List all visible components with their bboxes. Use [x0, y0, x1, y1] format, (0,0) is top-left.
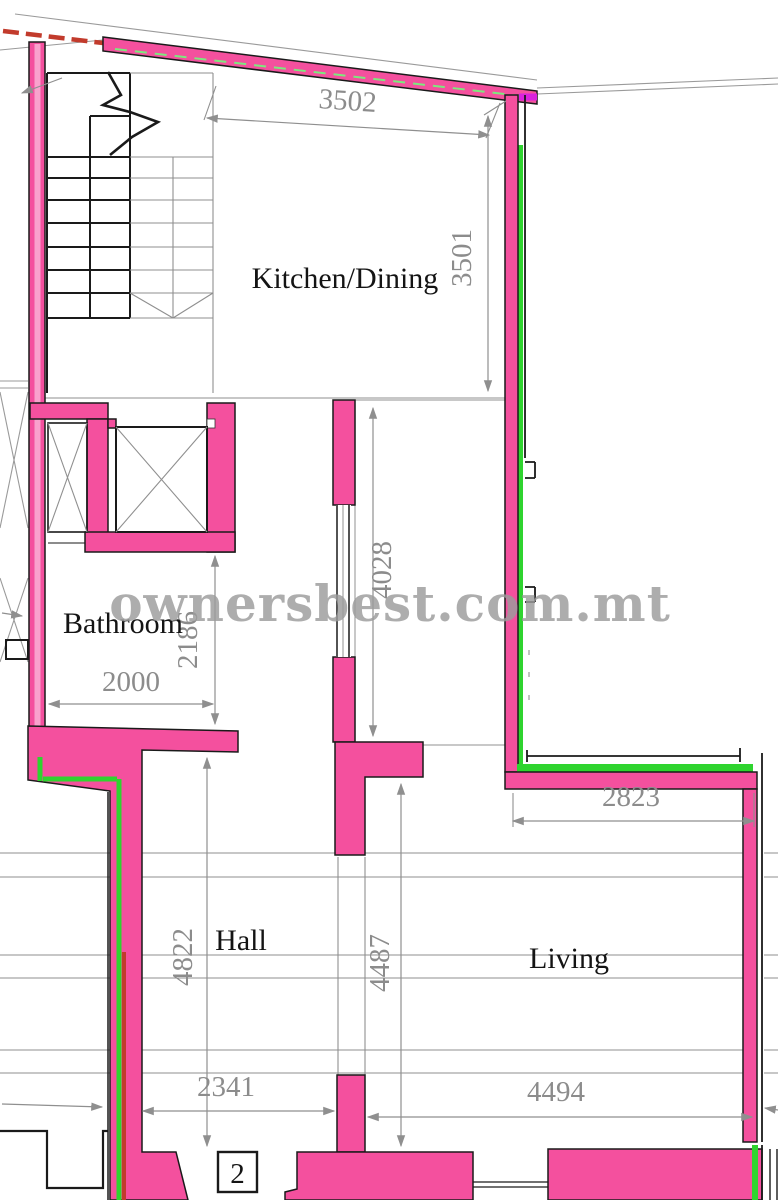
winder-treads [130, 293, 213, 318]
living-east-wall [743, 789, 757, 1142]
lift-shaft [30, 403, 235, 552]
bottom-wall-living [548, 1149, 762, 1200]
adjacent-outline-bottom-left [0, 1131, 108, 1188]
door-tag: 2 [218, 1152, 257, 1192]
dim-bathroom-width: 2000 [102, 666, 160, 698]
dim-kitchen-height: 3501 [446, 229, 478, 287]
kitchen-sw-wall [335, 742, 423, 855]
kitchen-east-wall [505, 95, 523, 772]
dim-hall-mid-height: 4487 [364, 934, 396, 992]
watermark-text: ownersbest.com.mt [109, 574, 671, 633]
dim-hall-bottom-width: 2341 [197, 1071, 255, 1103]
adjacent-shaft-left [0, 381, 28, 662]
bottom-wall-hall [285, 1152, 473, 1200]
dim-hall-height: 4822 [167, 928, 199, 986]
dim-living-bottom-width: 4494 [527, 1076, 586, 1108]
dim-living-top-width: 2823 [602, 781, 660, 813]
room-label-hall: Hall [215, 924, 267, 957]
room-label-living: Living [529, 942, 609, 975]
room-label-kitchen: Kitchen/Dining [252, 262, 439, 295]
floor-plan: 2 3502 3501 4028 2186 2000 2823 4822 448… [0, 0, 778, 1200]
bottom-window [473, 1182, 548, 1187]
floor-plan-drawing: 2 3502 3501 4028 2186 2000 2823 4822 448… [0, 0, 778, 1200]
dim-top-width: 3502 [318, 83, 378, 119]
staircase [43, 72, 505, 398]
door-tag-number: 2 [230, 1158, 245, 1190]
bottom-pier [337, 1075, 365, 1152]
